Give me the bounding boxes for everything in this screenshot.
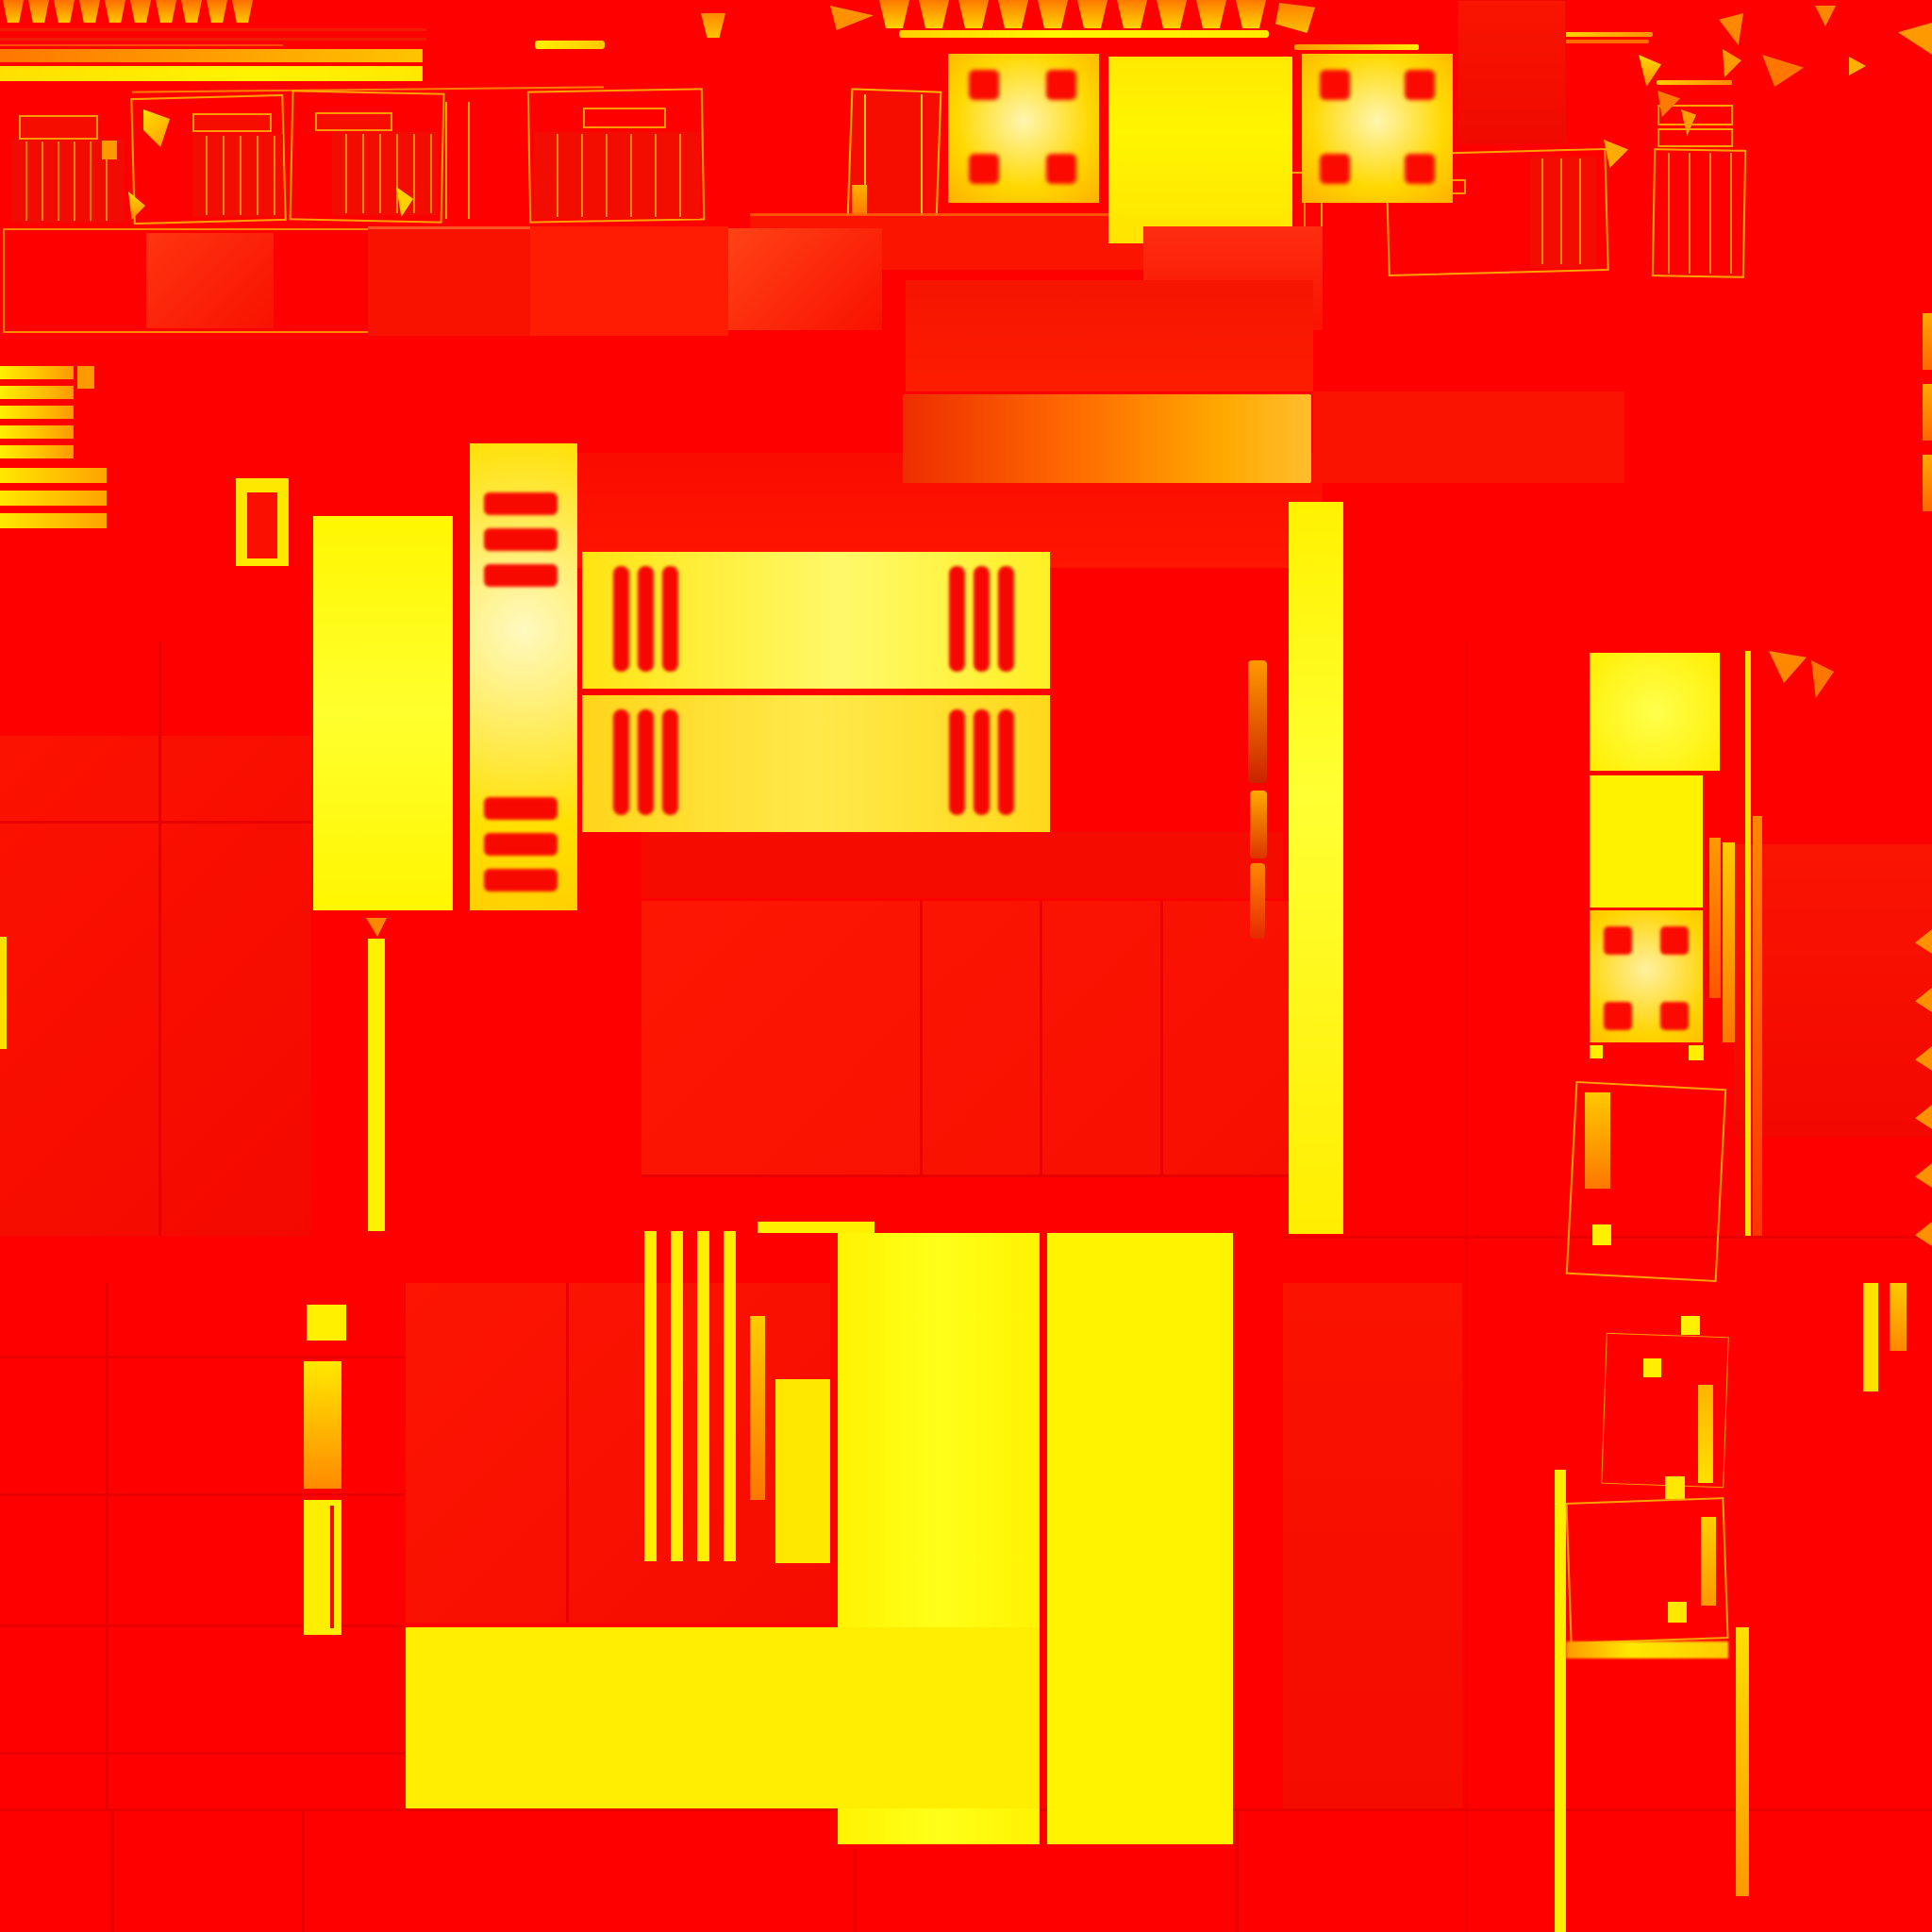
crate2-slat-line xyxy=(257,136,258,215)
comb-strip xyxy=(697,1231,709,1561)
shelf-bar-bottom-slat-left xyxy=(638,709,654,815)
rc-wedge-a xyxy=(1604,140,1628,168)
seam-bottom-v2 xyxy=(302,1811,305,1932)
seam-bl2-v xyxy=(566,1283,569,1623)
crate2-slat-line xyxy=(274,136,275,215)
right-orange-strip-a xyxy=(1709,838,1721,998)
crate3-panel xyxy=(332,132,438,215)
right-square-2 xyxy=(1590,775,1703,908)
br-glow-bar xyxy=(1566,1641,1728,1658)
crate1-slat-line xyxy=(74,142,75,221)
teeth-left xyxy=(207,0,227,23)
br-square-d xyxy=(1668,1602,1687,1623)
teeth-mid xyxy=(998,0,1028,28)
band-panel-b xyxy=(368,226,530,336)
line-plate3-top xyxy=(1294,44,1419,50)
teeth-mid xyxy=(919,0,949,28)
crate6-wedge xyxy=(852,185,867,217)
bg-panel-br2 xyxy=(1283,1283,1462,1808)
crate5-top-bar xyxy=(583,108,666,128)
stripe-line-c xyxy=(0,44,283,46)
seam-left-h xyxy=(0,821,311,824)
top-bar-yellow xyxy=(0,66,423,81)
rc-crate2-panel xyxy=(1530,157,1596,268)
line-topright-b xyxy=(1555,40,1649,43)
band-inner-panel xyxy=(146,233,274,328)
right-edge-tri xyxy=(1915,1222,1932,1246)
right-square-1 xyxy=(1590,653,1720,771)
br-square-a xyxy=(1681,1316,1700,1335)
left-stack-a xyxy=(0,366,74,379)
teeth-left xyxy=(28,0,49,23)
teeth-end-cap xyxy=(1275,3,1315,33)
bottom-band xyxy=(406,1627,1040,1808)
crate1-slat-line xyxy=(42,142,43,221)
crate5-slat-line xyxy=(557,134,558,217)
left-stack-b xyxy=(0,491,107,506)
br-grad-bar-b xyxy=(1701,1517,1716,1606)
mid-grad-bar-b xyxy=(1250,791,1267,858)
thin-vline xyxy=(1555,1470,1566,1932)
edge-strip xyxy=(1923,455,1932,511)
strip-seg-bottom xyxy=(304,1500,341,1635)
shelf-bar-bottom-slat-right xyxy=(974,709,990,815)
shard-f xyxy=(1815,6,1836,26)
column-b-bar-top xyxy=(484,492,558,515)
shard-h xyxy=(1849,57,1866,75)
br-container-bar xyxy=(1585,1092,1610,1189)
seam-center-v3 xyxy=(1160,901,1163,1174)
seam-bottom-v4 xyxy=(1236,1811,1239,1932)
teeth-left xyxy=(156,0,176,23)
plate-right-pin-row2 xyxy=(1320,154,1350,184)
shelf-bar-top-slat-left xyxy=(638,566,654,672)
br-ybar xyxy=(1863,1283,1878,1391)
crate3-slat-line xyxy=(396,134,398,213)
shard-e xyxy=(1762,55,1804,87)
comb-strip xyxy=(644,1231,657,1561)
column-right xyxy=(1289,502,1343,1234)
column-b-bar-top xyxy=(484,528,558,551)
comb-block xyxy=(775,1379,830,1563)
stripe-line-a xyxy=(0,28,426,31)
seam-left-col xyxy=(158,641,161,1236)
band-panel-c xyxy=(530,226,728,336)
crate2-chip xyxy=(102,141,117,159)
crate1-slat-line xyxy=(90,142,92,221)
rc-crate2-slat xyxy=(1541,158,1543,264)
tall-red-block xyxy=(1457,0,1566,144)
crate1-top-bar xyxy=(19,115,98,140)
edge-strip xyxy=(1923,384,1932,441)
left-stack-b xyxy=(0,513,107,528)
bg-panel-left xyxy=(0,736,311,1236)
left-stack-a xyxy=(0,406,74,419)
rc-crate2-slat xyxy=(1579,158,1581,264)
crate5-slat-line xyxy=(679,134,681,217)
br-ostrip xyxy=(1890,1283,1907,1351)
strip-seg-top xyxy=(304,1361,341,1489)
bg-panel-center2 xyxy=(641,901,1313,1174)
left-stack-a xyxy=(0,386,74,399)
shelf-bar-top-slat-right xyxy=(974,566,990,672)
teeth-mid xyxy=(958,0,989,28)
right-edge-tri xyxy=(1915,1163,1932,1188)
mid-grad-bar-a xyxy=(1248,660,1267,783)
stripe-line-b xyxy=(0,38,426,41)
crate3-slat-line xyxy=(362,134,364,213)
door-frame-inner xyxy=(247,492,277,558)
rc-crate-slat xyxy=(1668,153,1670,274)
br-tall-bar xyxy=(1736,1627,1749,1896)
teeth-mid xyxy=(1196,0,1226,28)
teeth-mid xyxy=(1236,0,1266,28)
plate-right-pin xyxy=(1320,70,1350,100)
plate-center xyxy=(1108,57,1292,243)
seam-center-h xyxy=(641,1174,1313,1177)
teeth-left xyxy=(181,0,202,23)
shard-c xyxy=(1719,13,1743,45)
small-square xyxy=(307,1305,346,1341)
br-grad-bar-a xyxy=(1698,1385,1713,1483)
seam-center-v1 xyxy=(920,901,923,1174)
right-grad-strip xyxy=(1753,816,1762,1236)
left-stack-a xyxy=(0,445,74,458)
narrow-strip-tri xyxy=(366,918,387,937)
plate-left-pin-row2 xyxy=(969,154,999,184)
crate2-slat-line xyxy=(223,136,225,215)
left-stack-a xyxy=(0,425,74,439)
crate5-slat-line xyxy=(581,134,583,217)
teeth-left xyxy=(232,0,253,23)
teeth-left xyxy=(3,0,24,23)
crate5-panel xyxy=(534,132,700,219)
crate1-slat-line xyxy=(25,142,27,221)
shelf-bar-top-slat-right xyxy=(998,566,1014,672)
right-chip-a xyxy=(1590,1045,1603,1058)
bg-panel-center xyxy=(641,832,1283,898)
crate3-slat-line xyxy=(345,134,347,213)
seam-bl-v xyxy=(106,1283,108,1808)
shard-right-b xyxy=(1811,660,1834,698)
column-b-bar-bottom xyxy=(484,797,558,820)
seam-bottom-v3 xyxy=(854,1847,857,1932)
teeth-left xyxy=(130,0,151,23)
comb-strip xyxy=(724,1231,736,1561)
texture-atlas-canvas xyxy=(0,0,1932,1932)
right-plate-pin xyxy=(1604,926,1632,955)
crate6-slat-line xyxy=(921,94,923,215)
red-slab-right xyxy=(1313,391,1624,483)
br-container-square xyxy=(1592,1224,1611,1245)
shelf-bar-top-slat-right xyxy=(949,566,965,672)
teeth-mid xyxy=(879,0,909,28)
rc-crate-slat xyxy=(1709,153,1711,274)
left-stack-b xyxy=(0,468,107,483)
shelf-bar-bottom-slat-left xyxy=(613,709,629,815)
teeth-lead-wedge xyxy=(830,6,874,30)
shelf-bar-bottom-slat-right xyxy=(949,709,965,815)
bg-panel-right xyxy=(1734,844,1932,1137)
column-b-bar-bottom xyxy=(484,833,558,856)
teeth-left xyxy=(79,0,100,23)
rc-crate-slat xyxy=(1730,153,1732,274)
left-stack-chip xyxy=(77,366,94,389)
teeth-mid xyxy=(1077,0,1108,28)
seam-bl-h2 xyxy=(0,1493,404,1496)
rc-crate-slat xyxy=(1689,153,1690,274)
tooth-small xyxy=(701,13,725,38)
right-plate-pin-row2 xyxy=(1660,1002,1689,1030)
seam-center-v2 xyxy=(1040,901,1042,1174)
column-b-bar-bottom xyxy=(484,869,558,891)
crate3-top-bar xyxy=(315,112,392,131)
mid-grad-bar-c xyxy=(1250,863,1265,939)
plate-left-pin xyxy=(1046,70,1076,100)
crate2-slat-line xyxy=(240,136,241,215)
teeth-left xyxy=(105,0,125,23)
shard-g xyxy=(1898,23,1932,55)
rc-bar-outline-b xyxy=(1657,128,1733,147)
orange-gradient-bar xyxy=(903,394,1311,483)
crate3-slat-line xyxy=(430,134,432,213)
crate3-slat-line xyxy=(413,134,415,213)
line-under-teeth xyxy=(899,30,1269,38)
seam-bl-h3 xyxy=(0,1624,404,1627)
strip-seg-line xyxy=(330,1506,334,1628)
seam-bottom-v1 xyxy=(111,1811,114,1932)
plate-right-pin-row2 xyxy=(1405,154,1435,184)
comb-grad-bar xyxy=(750,1316,765,1500)
crate4-slat-line xyxy=(445,102,447,219)
crate5-slat-line xyxy=(630,134,632,217)
right-plate-pin xyxy=(1660,926,1689,955)
seam-bl-h1 xyxy=(0,1356,404,1358)
column-c2 xyxy=(1047,1233,1233,1844)
shard-d xyxy=(1723,49,1741,77)
rc-crate2-slat xyxy=(1560,158,1562,264)
right-orange-strip-b xyxy=(1723,842,1735,1042)
crate2-top-bar xyxy=(192,113,272,132)
shelf-bar-bottom-slat-right xyxy=(998,709,1014,815)
band-panel-b-top xyxy=(368,226,530,229)
teeth-mid xyxy=(1117,0,1147,28)
crate1-slat-line xyxy=(58,142,59,221)
rc-line-b xyxy=(1657,80,1732,85)
teeth-mid xyxy=(1157,0,1187,28)
band-panel-d xyxy=(728,228,882,330)
teeth-mid xyxy=(1038,0,1068,28)
crate2-slat-line xyxy=(206,136,208,215)
shelf-bar-bottom-slat-left xyxy=(662,709,678,815)
narrow-strip xyxy=(368,939,385,1231)
plate-left-pin xyxy=(969,70,999,100)
big-red-block xyxy=(906,280,1313,391)
right-yellow-line xyxy=(1745,651,1751,1236)
left-sliver xyxy=(0,937,7,1049)
teeth-left xyxy=(54,0,75,23)
right-chip-b xyxy=(1689,1045,1704,1060)
edge-strip xyxy=(1923,313,1932,370)
br-square-c xyxy=(1665,1476,1685,1499)
crate4-slat-line xyxy=(468,102,470,219)
top-dash xyxy=(535,41,605,49)
shelf-bar-top-slat-left xyxy=(613,566,629,672)
crate5-slat-line xyxy=(655,134,657,217)
bg-panel-bl xyxy=(406,1283,830,1623)
shard-right-a xyxy=(1769,651,1807,683)
column-a xyxy=(313,516,453,910)
crate5-slat-line xyxy=(606,134,608,217)
top-bar-orange xyxy=(0,49,423,62)
shelf-bar-top-slat-left xyxy=(662,566,678,672)
comb-strip xyxy=(671,1231,683,1561)
right-plate-pin-row2 xyxy=(1604,1002,1632,1030)
plate-left-pin-row2 xyxy=(1046,154,1076,184)
rc-crate-outline xyxy=(1652,148,1746,278)
column-b-bar-top xyxy=(484,564,558,587)
seam-right-v xyxy=(1465,641,1468,1932)
crate3-slat-line xyxy=(379,134,381,213)
band-top-dash xyxy=(758,1222,874,1233)
plate-right-pin xyxy=(1405,70,1435,100)
